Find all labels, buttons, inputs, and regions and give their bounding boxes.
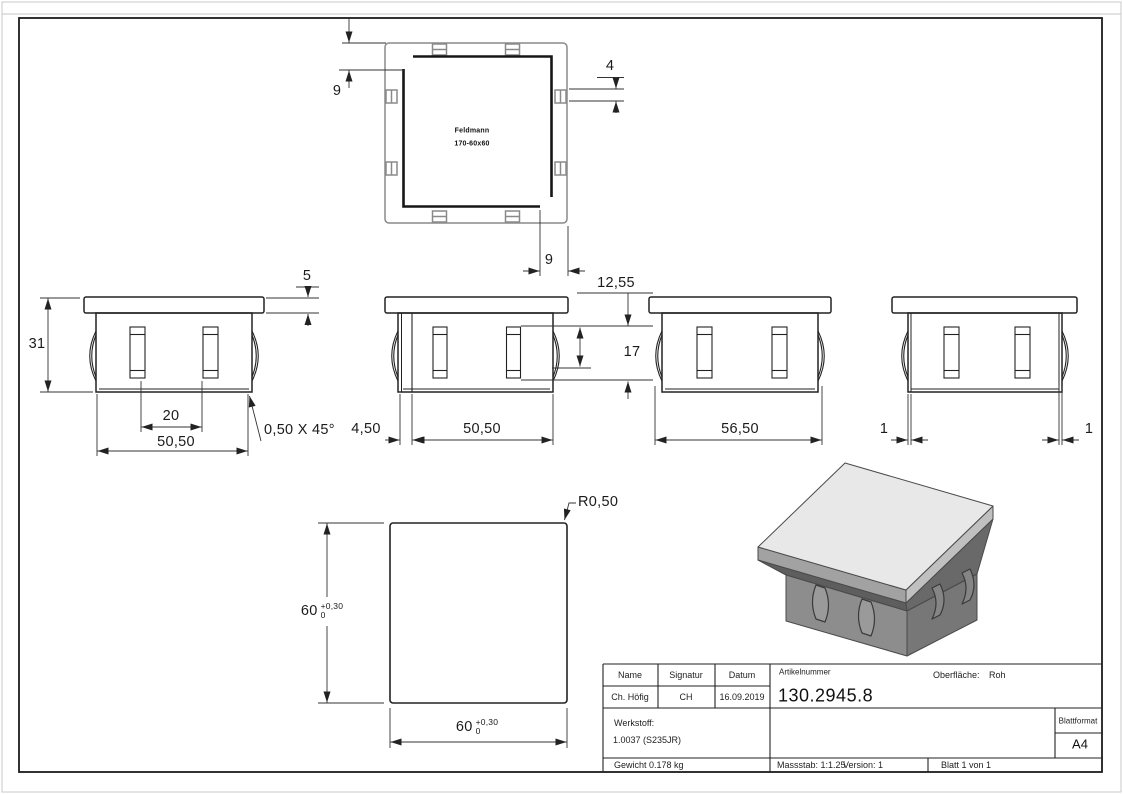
tb-sheet: Blatt 1 von 1 bbox=[941, 760, 991, 770]
tb-material-value: 1.0037 (S235JR) bbox=[613, 735, 681, 745]
tb-version: Version: 1 bbox=[843, 760, 883, 770]
title-block-grid bbox=[603, 664, 1102, 772]
tb-name-value: Ch. Höfig bbox=[611, 692, 649, 702]
dim-width-view1: 50,50 bbox=[157, 434, 195, 450]
tb-date-label: Datum bbox=[729, 670, 756, 680]
dim-flange-thickness: 5 bbox=[303, 268, 311, 284]
tb-signature-value: CH bbox=[680, 692, 693, 702]
dim-topview-bottom: 9 bbox=[545, 252, 553, 268]
tb-surface-value: Roh bbox=[989, 670, 1006, 680]
tolerance-zero: 0 bbox=[476, 727, 499, 736]
dim-square-width: 60 +0,30 0 bbox=[456, 718, 498, 736]
tb-material-label: Werkstoff: bbox=[614, 718, 654, 728]
isometric-view bbox=[758, 463, 993, 656]
dim-topview-tab: 4 bbox=[606, 58, 614, 74]
dim-slot-height: 17 bbox=[624, 344, 641, 360]
side-view-1 bbox=[84, 297, 264, 392]
dim-square-width-value: 60 bbox=[456, 719, 473, 735]
dim-wall-left: 1 bbox=[880, 421, 888, 437]
dim-chamfer: 0,50 X 45° bbox=[264, 422, 335, 438]
tb-signature-label: Signatur bbox=[669, 670, 703, 680]
brand-line2: 170-60x60 bbox=[454, 141, 489, 148]
tolerance-stack: +0,30 0 bbox=[476, 718, 499, 736]
drawing-sheet: Feldmann 170-60x60 9 4 9 12,55 17 5 31 2… bbox=[0, 0, 1123, 794]
tolerance-zero: 0 bbox=[321, 611, 344, 620]
tb-date-value: 16.09.2019 bbox=[719, 692, 764, 702]
tb-weight: Gewicht 0.178 kg bbox=[614, 760, 684, 770]
tolerance-stack: +0,30 0 bbox=[321, 602, 344, 620]
side-view-3 bbox=[649, 297, 831, 392]
bottom-view bbox=[390, 523, 567, 703]
dim-wall-view2: 4,50 bbox=[351, 421, 380, 437]
tb-article-number: 130.2945.8 bbox=[778, 686, 873, 707]
dim-offset: 12,55 bbox=[597, 275, 635, 291]
tb-format-label: Blattformat bbox=[1059, 717, 1098, 726]
dim-topview-left: 9 bbox=[333, 83, 341, 99]
dim-width-view3: 56,50 bbox=[721, 421, 759, 437]
side-view-4 bbox=[892, 297, 1077, 392]
dim-square-height-value: 60 bbox=[301, 603, 318, 619]
dim-square-height: 60 +0,30 0 bbox=[301, 602, 343, 620]
dim-corner-radius: R0,50 bbox=[578, 494, 618, 510]
dim-slot-spacing: 20 bbox=[163, 408, 180, 424]
tb-surface-label: Oberfläche: bbox=[933, 670, 980, 680]
tb-format-value: A4 bbox=[1072, 737, 1088, 752]
tb-scale: Massstab: 1:1.25 bbox=[777, 760, 846, 770]
dim-width-view2: 50,50 bbox=[463, 421, 501, 437]
side-view-2 bbox=[385, 297, 568, 392]
tb-article-label: Artikelnummer bbox=[779, 668, 831, 677]
dim-wall-right: 1 bbox=[1085, 421, 1093, 437]
brand-line1: Feldmann bbox=[455, 128, 490, 135]
tb-name-label: Name bbox=[618, 670, 642, 680]
dim-height: 31 bbox=[29, 336, 46, 352]
